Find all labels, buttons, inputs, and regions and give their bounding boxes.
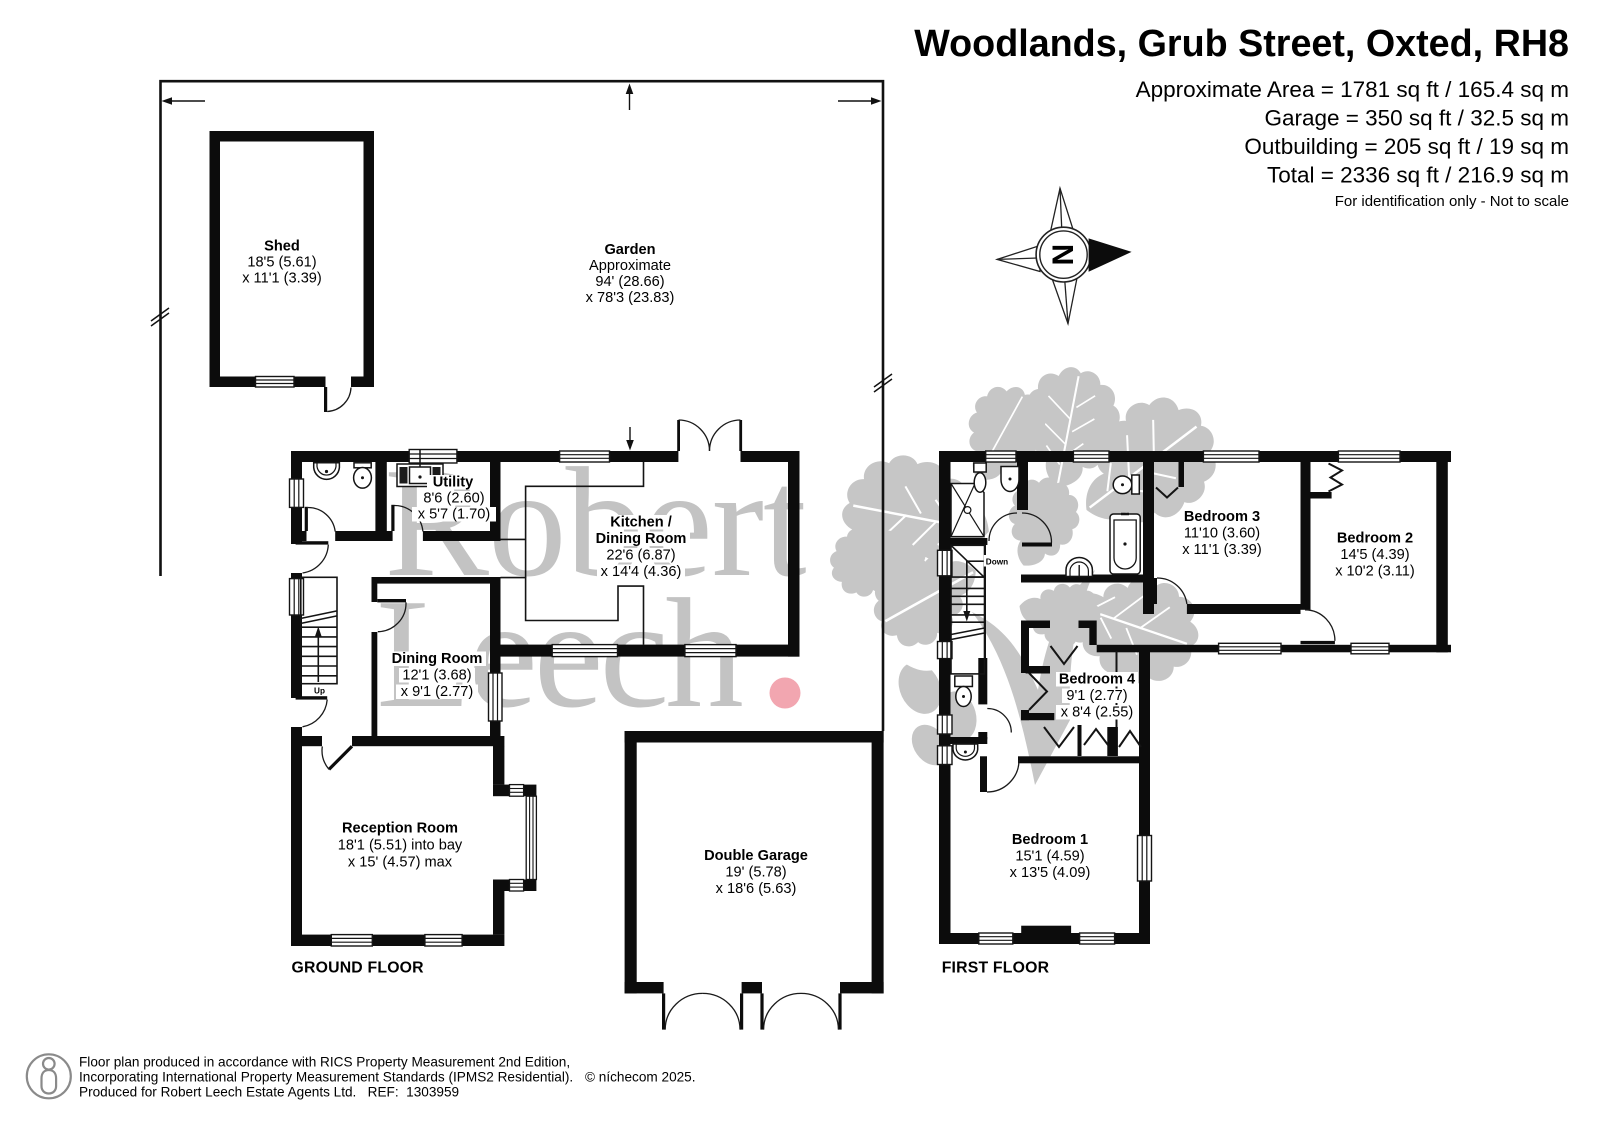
svg-text:Approximate Area = 1781 sq ft: Approximate Area = 1781 sq ft / 165.4 sq… [1136, 77, 1569, 102]
svg-text:Shed: Shed [264, 239, 300, 255]
svg-text:94' (28.66): 94' (28.66) [595, 274, 664, 290]
svg-text:N: N [1047, 244, 1080, 266]
svg-text:Kitchen /: Kitchen / [610, 515, 672, 531]
svg-text:For identification only - Not: For identification only - Not to scale [1335, 193, 1569, 210]
svg-text:Outbuilding = 205 sq ft / 19 s: Outbuilding = 205 sq ft / 19 sq m [1244, 134, 1569, 159]
svg-text:x 78'3 (23.83): x 78'3 (23.83) [586, 290, 675, 306]
svg-text:x 14'4 (4.36): x 14'4 (4.36) [601, 564, 682, 580]
svg-text:Total = 2336 sq ft / 216.9 sq: Total = 2336 sq ft / 216.9 sq m [1267, 163, 1569, 188]
svg-text:x 11'1 (3.39): x 11'1 (3.39) [242, 271, 322, 287]
svg-text:x 5'7 (1.70): x 5'7 (1.70) [418, 507, 491, 523]
svg-text:Utility: Utility [433, 475, 474, 491]
svg-text:Dining Room: Dining Room [596, 531, 687, 547]
svg-text:Dining Room: Dining Room [392, 651, 483, 667]
svg-text:8'6 (2.60): 8'6 (2.60) [423, 491, 484, 507]
svg-text:Incorporating International Pr: Incorporating International Property Mea… [79, 1070, 573, 1085]
svg-text:19' (5.78): 19' (5.78) [725, 865, 786, 881]
svg-text:Approximate: Approximate [589, 258, 671, 274]
svg-text:9'1 (2.77): 9'1 (2.77) [1066, 688, 1127, 704]
svg-text:14'5 (4.39): 14'5 (4.39) [1340, 547, 1409, 563]
svg-text:Bedroom 3: Bedroom 3 [1184, 509, 1260, 525]
svg-text:Floor plan produced in accorda: Floor plan produced in accordance with R… [79, 1055, 570, 1070]
svg-text:Garage = 350 sq ft / 32.5 sq m: Garage = 350 sq ft / 32.5 sq m [1264, 106, 1569, 131]
svg-text:Down: Down [986, 558, 1008, 567]
svg-text:x 8'4 (2.55): x 8'4 (2.55) [1061, 705, 1134, 721]
svg-text:© níchecom 2025.: © níchecom 2025. [585, 1070, 696, 1085]
svg-text:15'1 (4.59): 15'1 (4.59) [1015, 849, 1084, 865]
svg-text:FIRST FLOOR: FIRST FLOOR [942, 960, 1050, 977]
svg-text:GROUND FLOOR: GROUND FLOOR [292, 960, 425, 977]
svg-text:Produced for Robert Leech Esta: Produced for Robert Leech Estate Agents … [79, 1085, 459, 1100]
svg-text:Bedroom 1: Bedroom 1 [1012, 832, 1088, 848]
svg-text:Double Garage: Double Garage [704, 848, 808, 864]
svg-text:x 18'6 (5.63): x 18'6 (5.63) [716, 881, 797, 897]
svg-text:x 15' (4.57) max: x 15' (4.57) max [348, 855, 453, 871]
svg-text:11'10 (3.60): 11'10 (3.60) [1184, 526, 1260, 542]
svg-text:Bedroom 4: Bedroom 4 [1059, 672, 1136, 688]
svg-text:Reception Room: Reception Room [342, 821, 458, 837]
svg-text:Up: Up [314, 687, 325, 696]
svg-text:Garden: Garden [604, 242, 655, 258]
svg-text:18'1 (5.51) into bay: 18'1 (5.51) into bay [338, 838, 463, 854]
svg-text:22'6 (6.87): 22'6 (6.87) [606, 548, 675, 564]
svg-text:x 10'2 (3.11): x 10'2 (3.11) [1335, 564, 1415, 580]
svg-text:Bedroom 2: Bedroom 2 [1337, 531, 1413, 547]
svg-text:18'5 (5.61): 18'5 (5.61) [247, 255, 316, 271]
svg-text:x 13'5 (4.09): x 13'5 (4.09) [1010, 865, 1091, 881]
svg-text:12'1 (3.68): 12'1 (3.68) [402, 668, 471, 684]
svg-text:x 9'1 (2.77): x 9'1 (2.77) [401, 684, 474, 700]
svg-text:Woodlands, Grub Street, Oxted,: Woodlands, Grub Street, Oxted, RH8 [914, 22, 1569, 64]
svg-text:x 11'1 (3.39): x 11'1 (3.39) [1182, 542, 1262, 558]
